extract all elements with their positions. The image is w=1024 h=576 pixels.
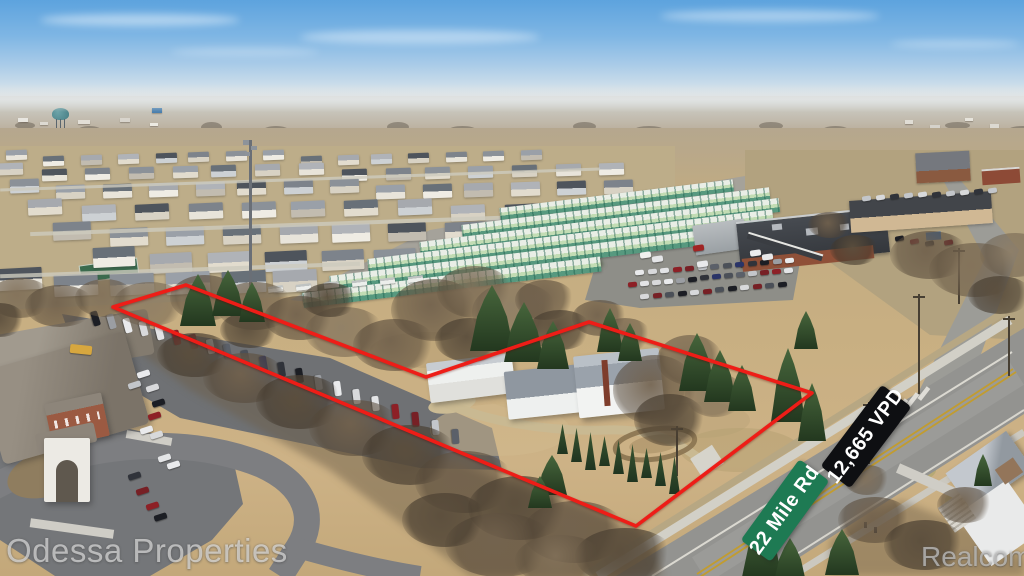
property-outline [0,0,1024,576]
aerial-listing-photo: 22 Mile Rd 12,665 VPD Odessa Properties … [0,0,1024,576]
property-boundary-line [113,285,812,526]
